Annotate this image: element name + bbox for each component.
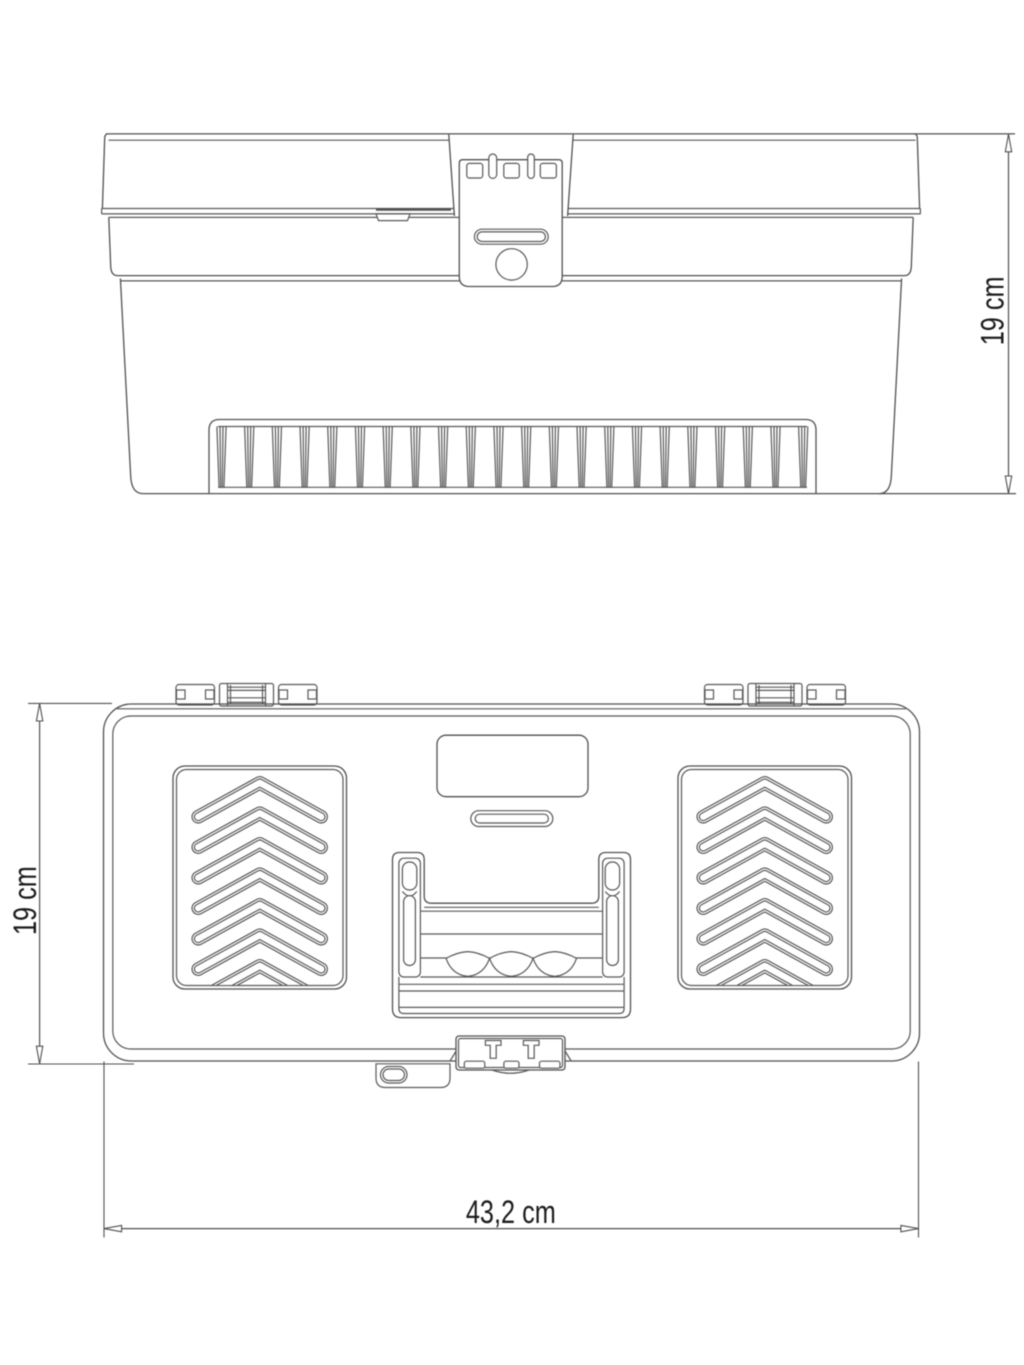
svg-text:43,2 cm: 43,2 cm: [466, 1195, 556, 1231]
svg-text:19 cm: 19 cm: [976, 276, 1012, 345]
svg-text:19 cm: 19 cm: [8, 866, 44, 935]
